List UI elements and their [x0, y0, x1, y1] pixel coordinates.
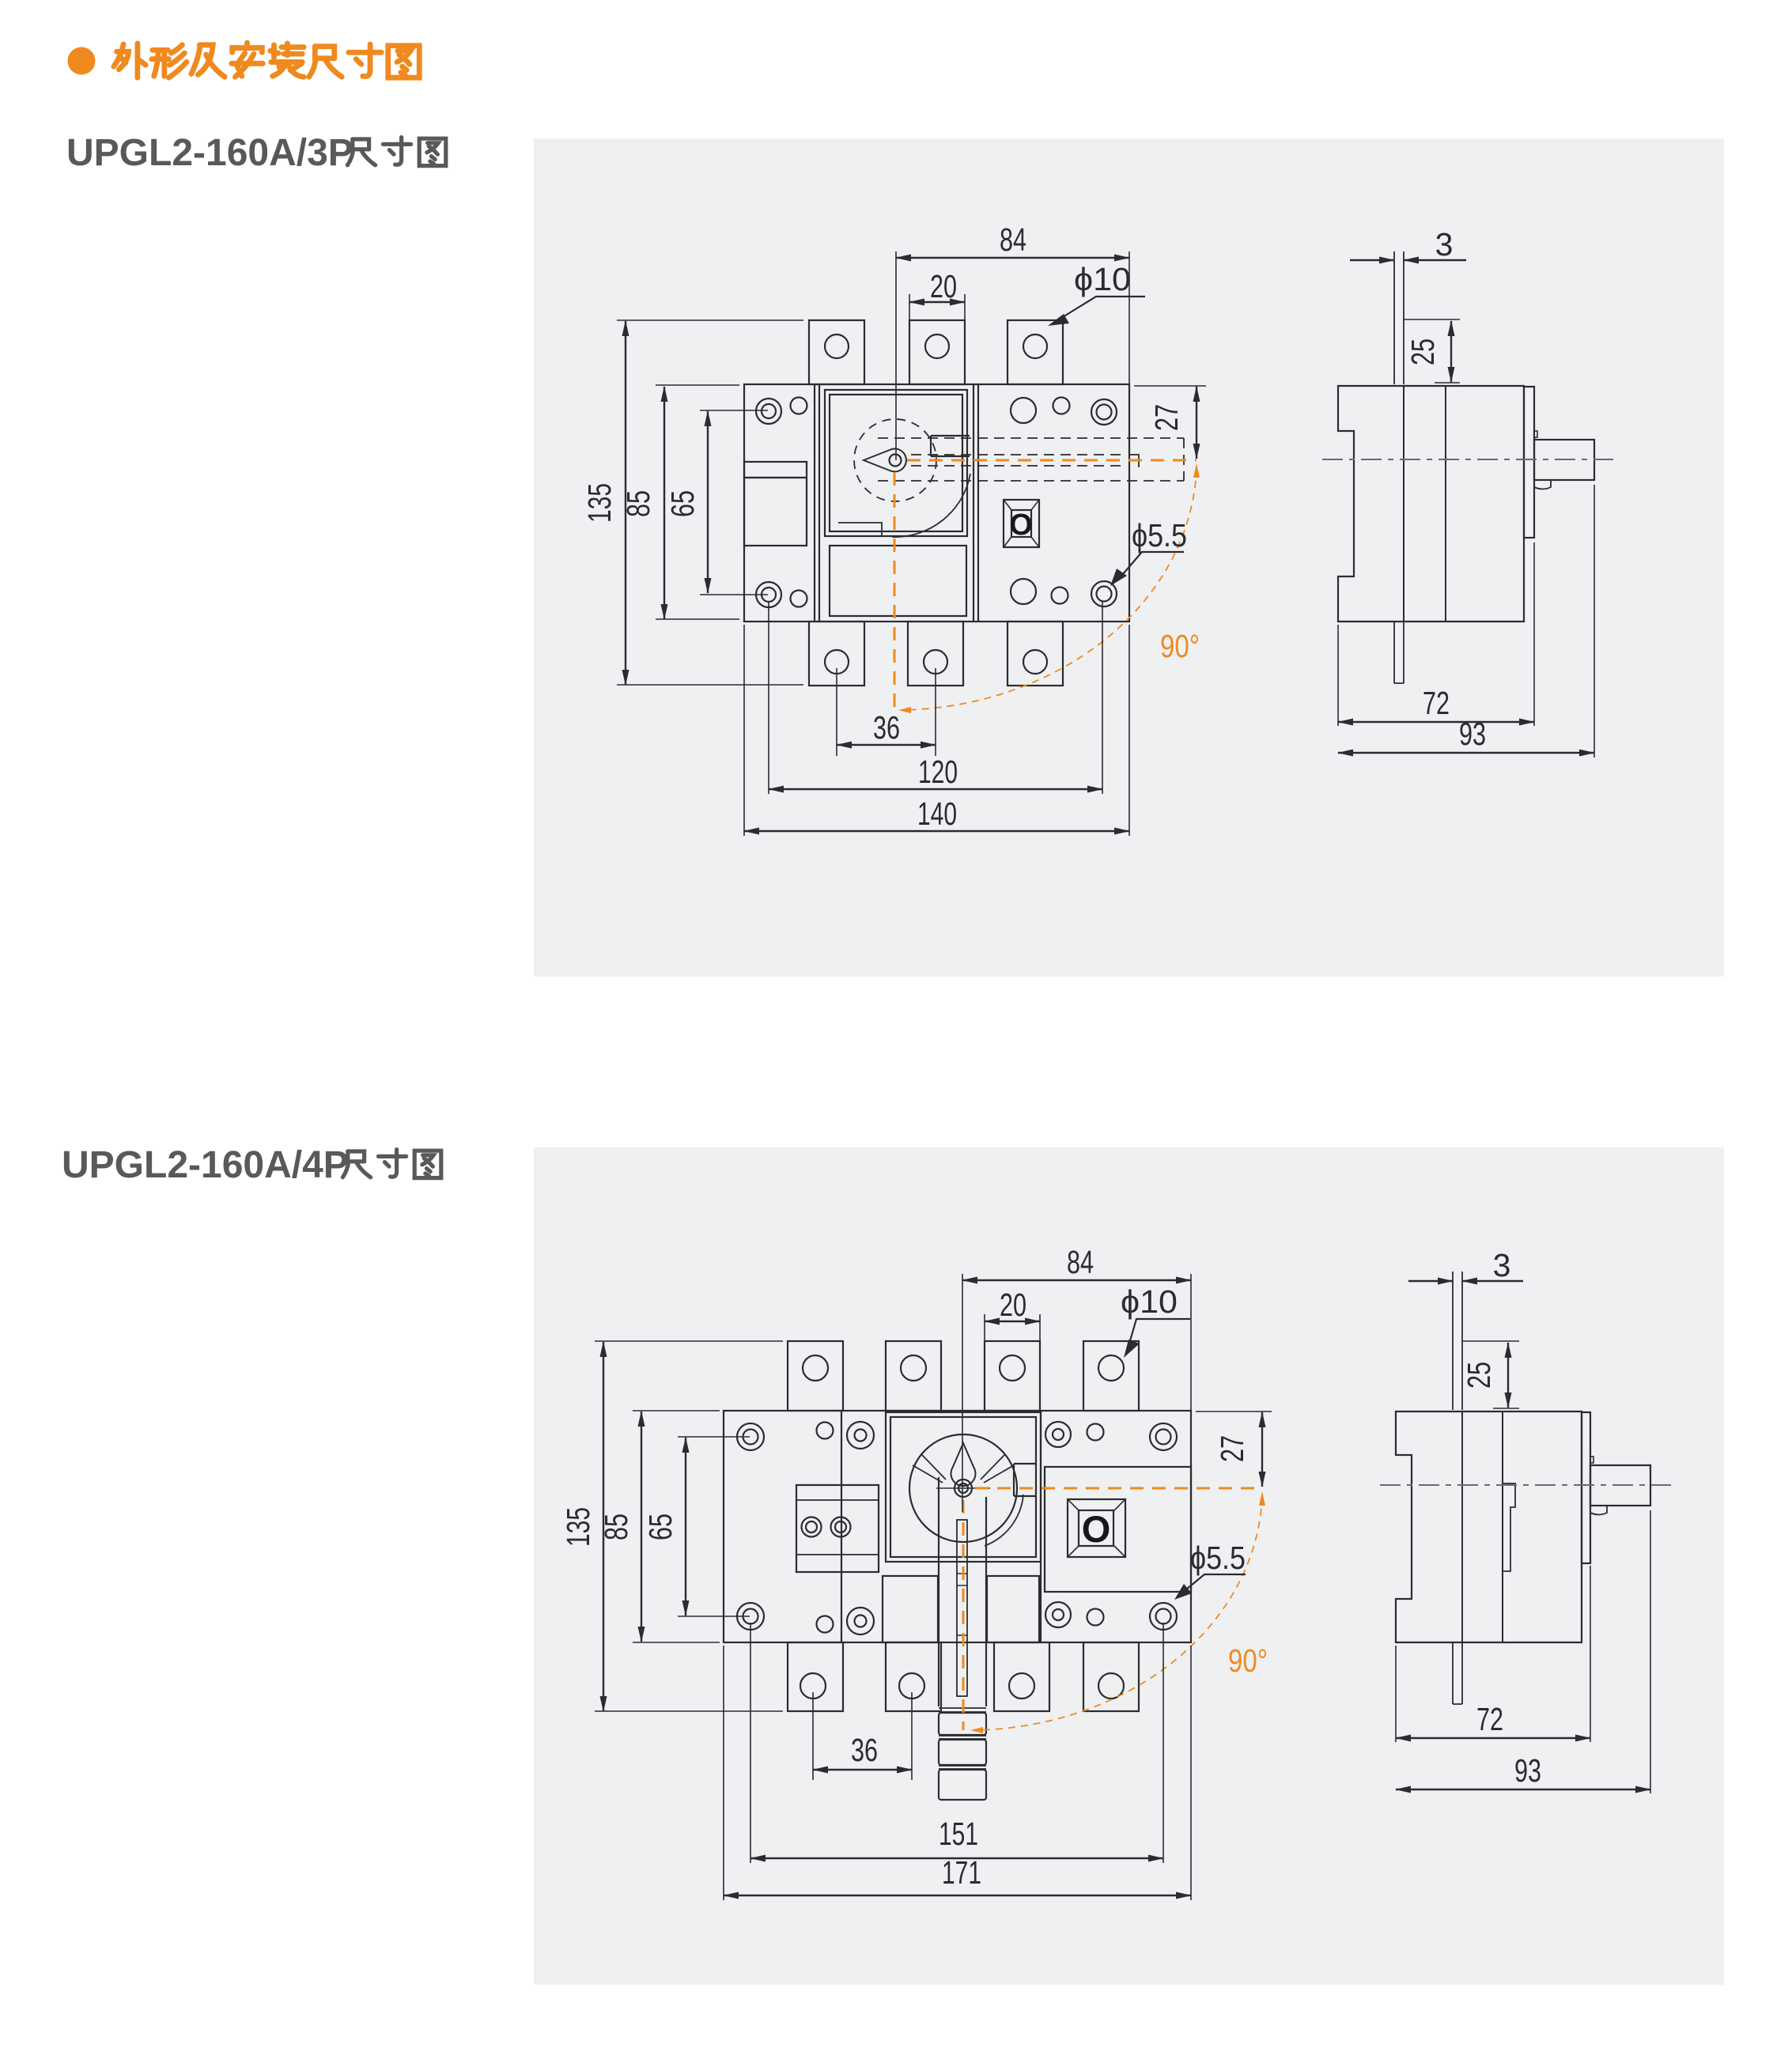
svg-text:135: 135: [581, 483, 618, 523]
svg-text:UPGL2-160A/4P: UPGL2-160A/4P: [62, 1144, 349, 1186]
svg-text:85: 85: [620, 490, 656, 517]
svg-text:25: 25: [1461, 1362, 1497, 1389]
svg-text:120: 120: [918, 754, 958, 790]
svg-text:O: O: [1009, 508, 1033, 542]
svg-text:36: 36: [873, 709, 900, 746]
svg-text:93: 93: [1514, 1752, 1541, 1789]
svg-text:90°: 90°: [1160, 628, 1200, 664]
svg-text:20: 20: [1000, 1287, 1026, 1323]
svg-text:65: 65: [664, 490, 701, 517]
svg-text:27: 27: [1214, 1435, 1250, 1462]
svg-text:20: 20: [930, 268, 957, 304]
svg-text:85: 85: [598, 1513, 634, 1540]
svg-text:36: 36: [851, 1732, 878, 1768]
svg-text:27: 27: [1148, 404, 1185, 431]
svg-text:72: 72: [1423, 685, 1450, 721]
svg-text:UPGL2-160A/3P: UPGL2-160A/3P: [66, 132, 353, 174]
svg-text:93: 93: [1459, 716, 1486, 752]
svg-text:171: 171: [942, 1854, 981, 1891]
svg-text:135: 135: [560, 1507, 596, 1547]
svg-text:O: O: [1082, 1508, 1111, 1550]
svg-text:84: 84: [1000, 221, 1026, 258]
svg-text:3: 3: [1435, 226, 1454, 263]
svg-text:90°: 90°: [1228, 1642, 1268, 1679]
svg-text:140: 140: [917, 795, 957, 832]
svg-text:25: 25: [1404, 338, 1441, 365]
svg-text:ϕ5.5: ϕ5.5: [1190, 1540, 1246, 1576]
svg-text:151: 151: [939, 1816, 978, 1852]
svg-text:ϕ10: ϕ10: [1074, 261, 1131, 297]
svg-text:ϕ5.5: ϕ5.5: [1132, 517, 1187, 554]
svg-text:ϕ10: ϕ10: [1121, 1283, 1178, 1320]
svg-text:72: 72: [1476, 1701, 1503, 1737]
svg-text:3: 3: [1493, 1247, 1511, 1283]
svg-text:84: 84: [1067, 1244, 1094, 1280]
svg-text:65: 65: [642, 1513, 679, 1540]
